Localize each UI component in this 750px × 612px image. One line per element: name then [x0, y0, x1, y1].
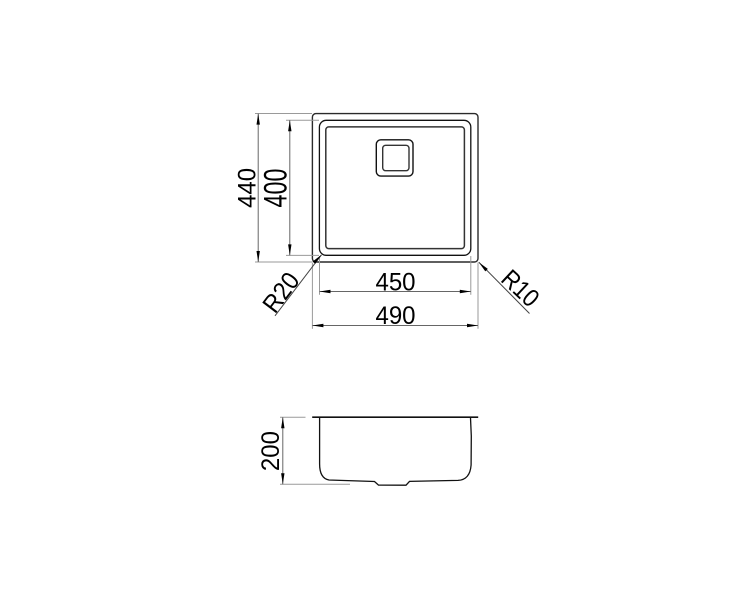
svg-text:450: 450 — [375, 269, 415, 297]
svg-text:200: 200 — [257, 431, 285, 471]
svg-text:400: 400 — [257, 169, 294, 208]
svg-text:490: 490 — [375, 303, 415, 331]
